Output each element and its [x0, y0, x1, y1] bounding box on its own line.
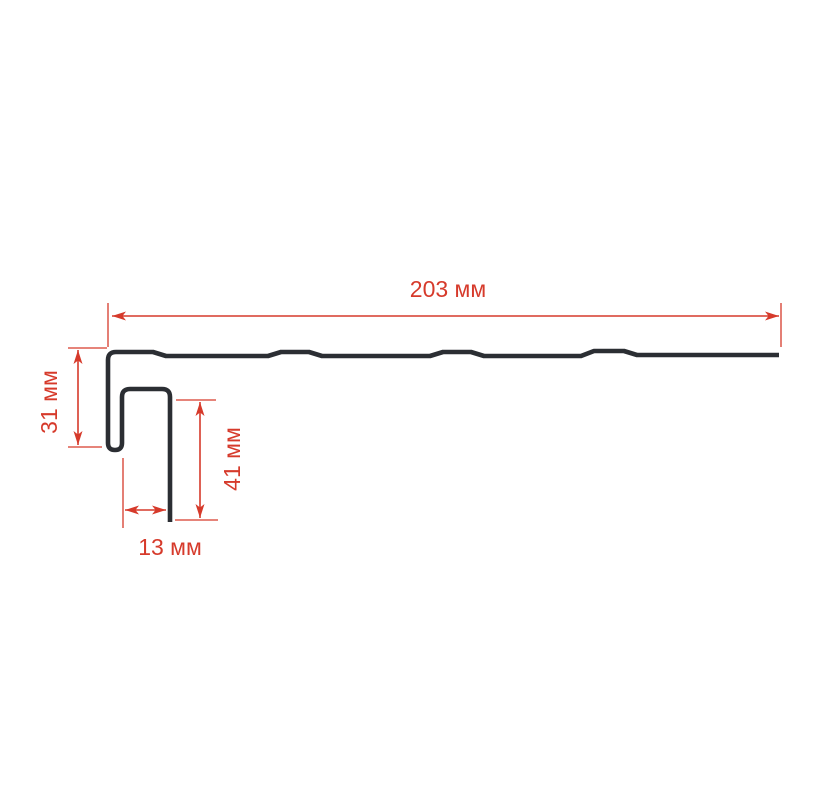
- dim-height: 31 мм: [36, 348, 107, 447]
- dim-leg-label: 41 мм: [219, 427, 245, 491]
- profile-outline: [108, 351, 779, 522]
- dim-width: 13 мм: [123, 458, 202, 560]
- dim-leg: 41 мм: [175, 400, 245, 520]
- dim-width-label: 13 мм: [138, 534, 202, 560]
- technical-drawing: 203 мм 31 мм 41 мм 13 мм: [0, 0, 839, 810]
- drawing-svg: 203 мм 31 мм 41 мм 13 мм: [0, 0, 839, 810]
- dim-height-label: 31 мм: [36, 370, 62, 434]
- dim-length: 203 мм: [108, 276, 781, 347]
- dim-length-label: 203 мм: [410, 276, 486, 302]
